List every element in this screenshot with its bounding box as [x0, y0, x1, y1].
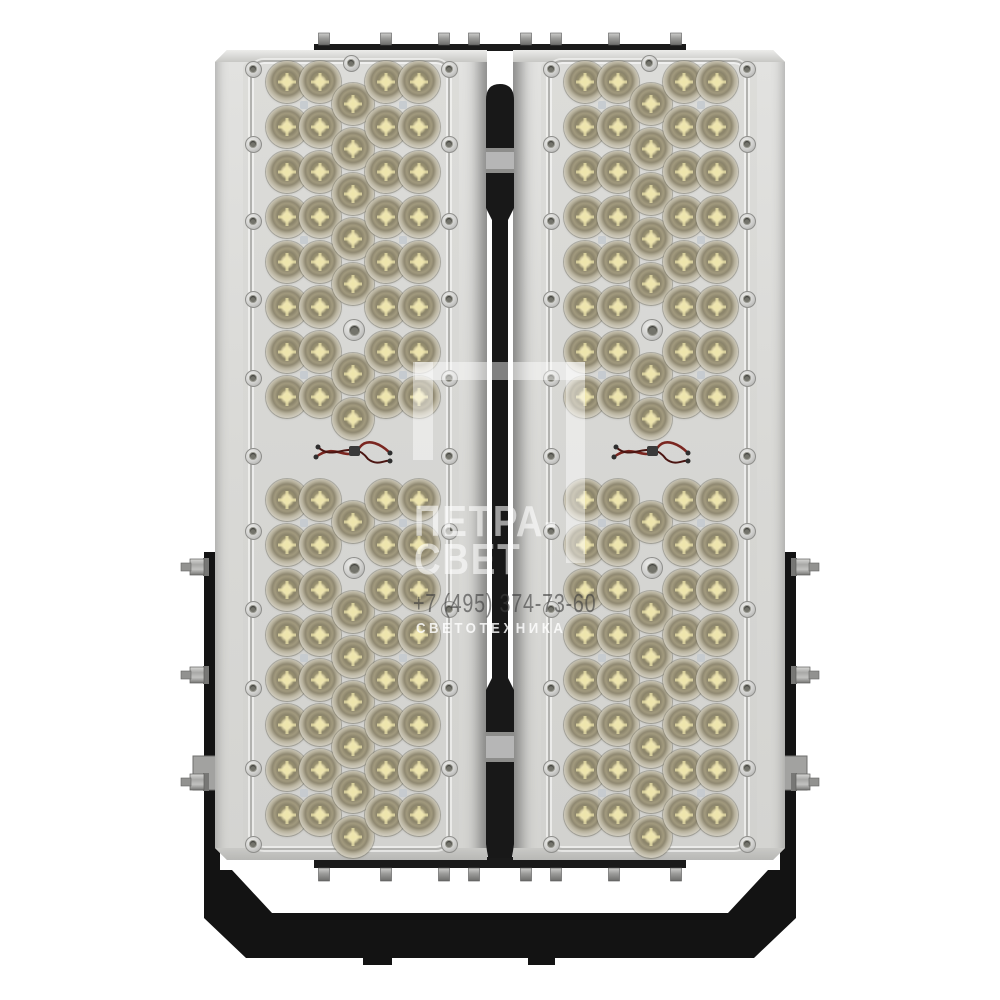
spine-band-bottom	[486, 732, 514, 762]
product-photo: ПЕТРА- СВЕТ +7 (495) 374-73-60 СВЕТОТЕХН…	[0, 0, 1000, 1000]
center-spine-graphic	[0, 0, 1000, 1000]
